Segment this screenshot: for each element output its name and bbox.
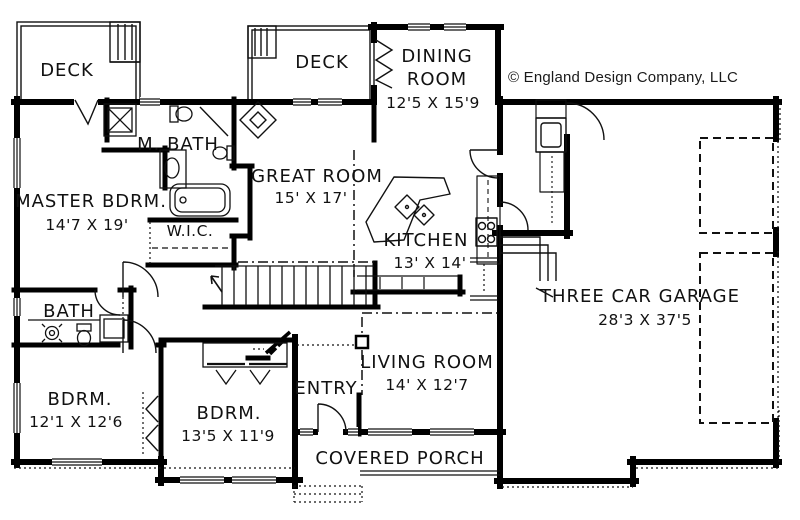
fireplace [240,102,276,138]
bedroom-middle-dims: 13'5 X 11'9 [181,427,275,445]
kitchen-dims: 13' X 14' [394,254,467,272]
entry-label: ENTRY [294,378,357,399]
room-labels: DECK DECK DINING ROOM 12'5 X 15'9 © Engl… [15,46,740,469]
dining-room-label-2: ROOM [407,69,467,90]
front-door-arc [318,404,346,432]
bedroom-left-label: BDRM. [48,389,113,410]
bath-label: BATH [43,301,95,322]
dining-room-dims: 12'5 X 15'9 [386,94,480,112]
bedroom-left-dims: 12'1 X 12'6 [29,413,123,431]
garage-door-headers [700,138,773,423]
floor-plan-page: DECK DECK DINING ROOM 12'5 X 15'9 © Engl… [0,0,800,520]
pedestal-sink [46,327,59,340]
island-sink-1 [395,195,419,219]
covered-porch-edges [360,471,500,475]
stairs-direction-arrow [211,276,222,292]
shower-door-line [200,107,228,136]
dining-room-label-1: DINING [401,46,472,67]
bath-door-arc [95,290,120,315]
bedroom-left-closet-doors [146,396,158,451]
kitchen-corridor-door-arc [470,150,498,178]
garage-entry-door-arc [567,103,604,140]
master-bedroom-label: MASTER BDRM. [15,191,167,212]
wic-label: W.I.C. [167,222,214,240]
great-room-dims: 15' X 17' [275,189,348,207]
staircase [211,266,374,305]
garage-dims: 28'3 X 37'5 [598,311,692,329]
deck-left-label: DECK [40,60,94,81]
structural-post [356,336,368,348]
living-room-dims: 14' X 12'7 [385,376,468,394]
mudroom-door-arc [500,202,528,230]
deck-middle-label: DECK [295,52,349,73]
master-bath-label: M. BATH [137,134,219,155]
dining-bay-zigzag [376,40,392,88]
master-bedroom-dims: 14'7 X 19' [45,216,128,234]
covered-porch-label: COVERED PORCH [315,448,484,469]
living-room-label: LIVING ROOM [360,352,493,373]
copyright-text: © England Design Company, LLC [508,69,738,86]
garage-label: THREE CAR GARAGE [539,286,740,307]
bedroom-middle-label: BDRM. [197,403,262,424]
porch-steps [294,486,362,502]
toilet-tank [170,106,178,122]
peninsula-counter [357,276,458,290]
great-room-label: GREAT ROOM [251,166,383,187]
kitchen-label: KITCHEN [384,230,469,251]
floor-plan-drawing: DECK DECK DINING ROOM 12'5 X 15'9 © Engl… [0,0,800,520]
